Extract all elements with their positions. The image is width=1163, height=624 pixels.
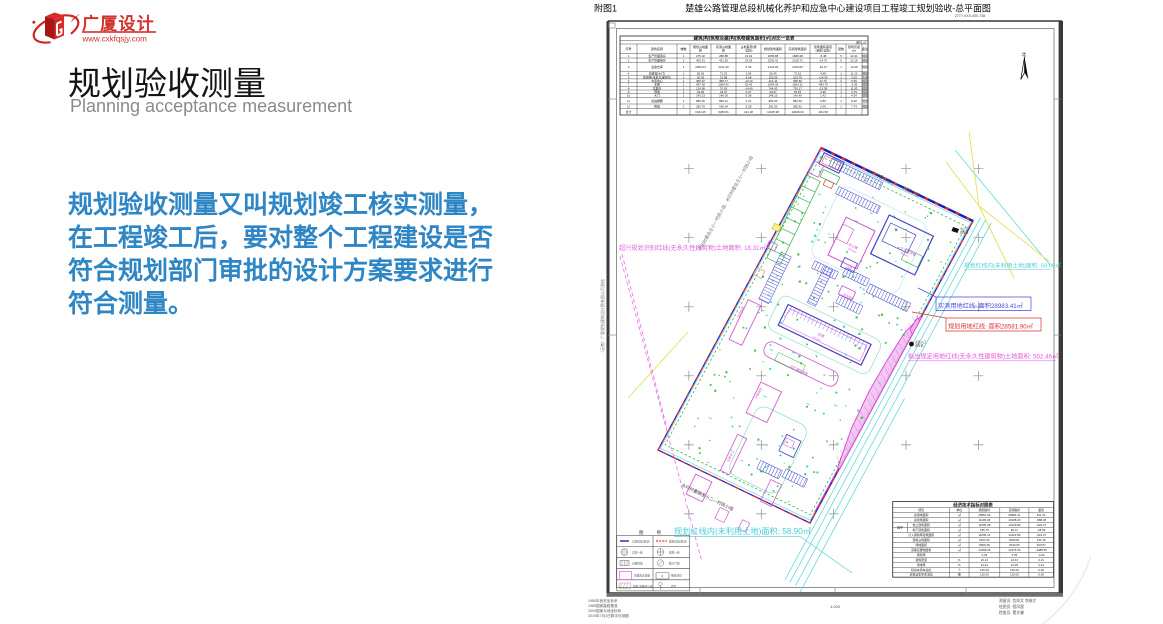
svg-text:1: 1	[628, 54, 630, 58]
svg-text:22.12: 22.12	[981, 558, 989, 562]
svg-text:数字门牌: 数字门牌	[669, 561, 680, 565]
svg-text:广厦设计: 广厦设计	[82, 14, 155, 34]
svg-text:大门: 大门	[654, 93, 660, 98]
svg-text:5: 5	[840, 59, 842, 63]
svg-text:实测用地红线: 面积28983.41㎡: 实测用地红线: 面积28983.41㎡	[938, 302, 1024, 310]
svg-text:差值: 差值	[1038, 507, 1044, 512]
svg-text:检查员: 窦文馨: 检查员: 窦文馨	[999, 610, 1024, 615]
svg-text:2777.XXX-000.738: 2777.XXX-000.738	[955, 14, 985, 18]
svg-text:401.41: 401.41	[1037, 513, 1046, 517]
svg-text:2134.93: 2134.93	[768, 65, 779, 69]
svg-text:分幢界线: 分幢界线	[632, 561, 643, 565]
svg-text:(规划-实际): (规划-实际)	[816, 48, 831, 53]
svg-text:-5.48: -5.48	[820, 54, 827, 58]
svg-text:882.00: 882.00	[696, 99, 705, 103]
svg-text:8966.28: 8966.28	[979, 543, 990, 547]
svg-text:道路及硬地面积: 道路及硬地面积	[911, 547, 931, 552]
svg-text:120.00: 120.00	[980, 573, 989, 577]
svg-text:2131.46: 2131.46	[718, 65, 729, 69]
svg-text:序号: 序号	[625, 46, 631, 51]
svg-text:10123.89: 10123.89	[1008, 533, 1020, 537]
svg-text:2093.03: 2093.03	[695, 65, 706, 69]
svg-text:11195.38: 11195.38	[767, 110, 779, 114]
svg-text:生产管理用房: 生产管理用房	[648, 53, 665, 58]
svg-text:㎡: ㎡	[958, 532, 961, 537]
svg-text:总建筑面积: 总建筑面积	[914, 517, 929, 522]
svg-text:拟出规定用地红线(无永久性建筑物)土地面积: 502.46㎡: 拟出规定用地红线(无永久性建筑物)土地面积: 502.46㎡	[908, 353, 1059, 361]
svg-text:规划红线内(未利用土地)面积: 59.09㎡: 规划红线内(未利用土地)面积: 59.09㎡	[964, 262, 1061, 270]
svg-text:实测建筑面积: 实测建筑面积	[788, 46, 806, 51]
svg-text:405.51: 405.51	[696, 59, 705, 63]
svg-text:㎡: ㎡	[958, 512, 961, 517]
svg-text:13.43: 13.43	[745, 54, 753, 58]
svg-text:双车道: 双车道	[960, 231, 969, 235]
svg-text:2000国家大地坐标系: 2000国家大地坐标系	[588, 608, 622, 613]
svg-text:规划红线内(未利用土地)面积: 58.90㎡: 规划红线内(未利用土地)面积: 58.90㎡	[674, 526, 811, 536]
svg-text:积: 积	[722, 48, 725, 53]
svg-text:加油棚棚: 加油棚棚	[651, 98, 663, 103]
svg-text:地下建筑面积: 地下建筑面积	[913, 527, 930, 532]
svg-text:规建: 规建	[862, 58, 868, 63]
svg-text:个: 个	[958, 568, 961, 572]
svg-text:非机动车停车泊位: 非机动车停车泊位	[910, 572, 933, 577]
svg-text:规建: 规建	[862, 93, 868, 98]
svg-text:超兴规划识别红线(无永久性建筑物)土地面积: 18.31㎡: 超兴规划识别红线(无永久性建筑物)土地面积: 18.31㎡	[619, 244, 767, 252]
svg-text:1: 1	[683, 59, 685, 63]
svg-text:水印村委会王小——村民小组: 水印村委会王小——村民小组	[866, 167, 921, 198]
svg-text:1: 1	[683, 94, 685, 98]
svg-text:10: 10	[627, 94, 631, 98]
svg-text:-28.59: -28.59	[1037, 528, 1046, 532]
svg-text:计入容积率建筑面积: 计入容积率建筑面积	[908, 532, 934, 537]
svg-text:2218.71: 2218.71	[792, 59, 803, 63]
svg-text:28581.90: 28581.90	[978, 513, 990, 517]
svg-text:6466.81: 6466.81	[1009, 538, 1020, 542]
svg-text:规划建筑面积: 规划建筑面积	[764, 46, 782, 51]
svg-text:4.21: 4.21	[746, 99, 752, 103]
svg-text:规划一栋: 规划一栋	[669, 550, 680, 554]
svg-text:实测红线(现状): 实测红线(现状)	[632, 539, 650, 543]
svg-text:11: 11	[627, 99, 630, 103]
svg-text:0.39: 0.39	[982, 553, 988, 557]
svg-text:7.74: 7.74	[851, 104, 857, 108]
svg-text:幢数: 幢数	[680, 46, 686, 51]
svg-text:9616.65: 9616.65	[1009, 543, 1020, 547]
svg-text:(m): (m)	[852, 49, 857, 53]
svg-text:8.46: 8.46	[746, 65, 752, 69]
svg-text:1: 1	[840, 104, 842, 108]
svg-text:1: 1	[683, 104, 685, 108]
svg-text:126.00: 126.00	[1010, 568, 1019, 572]
svg-text:-934.47: -934.47	[1036, 523, 1046, 527]
svg-text:机动车停车泊位: 机动车停车泊位	[911, 567, 931, 572]
svg-text:（云南）广厦规划建筑设计院有限公司测绘: （云南）广厦规划建筑设计院有限公司测绘	[599, 279, 605, 355]
svg-text:图 例: 图 例	[639, 529, 667, 536]
svg-text:单位: 单位	[956, 507, 962, 512]
svg-text:建筑(构)筑物及建(构)筑物建筑面积(㎡)对比一览表: 建筑(构)筑物及建(构)筑物建筑面积(㎡)对比一览表	[692, 35, 794, 42]
svg-text:0.31: 0.31	[1038, 558, 1044, 562]
svg-text:248.13: 248.13	[769, 94, 778, 98]
svg-text:-1088.96: -1088.96	[1035, 548, 1047, 552]
svg-text:4.34: 4.34	[851, 94, 857, 98]
svg-text:设备仓库: 设备仓库	[651, 64, 663, 69]
svg-text:5.08: 5.08	[746, 94, 752, 98]
svg-text:140.40: 140.40	[793, 94, 802, 98]
svg-text:辆: 辆	[958, 572, 961, 577]
svg-text:㎡: ㎡	[958, 537, 961, 542]
svg-text:12.08: 12.08	[850, 65, 858, 69]
svg-text:拆除部位: 拆除部位	[671, 573, 682, 577]
svg-text:规划红线(现状): 规划红线(现状)	[669, 539, 687, 543]
svg-text:绿地面积: 绿地面积	[915, 542, 927, 547]
svg-text:备注: 备注	[862, 46, 868, 51]
svg-text:建筑名称: 建筑名称	[651, 46, 663, 51]
svg-text:规划指标: 规划指标	[979, 507, 991, 512]
svg-text:-0.04: -0.04	[1038, 553, 1045, 557]
svg-text:141.28: 141.28	[744, 110, 753, 114]
svg-text:882.93: 882.93	[769, 99, 778, 103]
svg-text:31.44: 31.44	[981, 563, 989, 567]
svg-text:容积率: 容积率	[917, 552, 926, 557]
svg-text:2100.83: 2100.83	[792, 65, 803, 69]
svg-text:283.76: 283.76	[696, 104, 705, 108]
svg-text:2.00: 2.00	[820, 104, 826, 108]
svg-text:10208.00: 10208.00	[791, 110, 803, 114]
svg-text:层数: 层数	[838, 46, 844, 51]
svg-text:28983.41: 28983.41	[1008, 513, 1020, 517]
svg-text:产配电房: 产配电房	[753, 386, 763, 399]
svg-text:2.91: 2.91	[1038, 563, 1044, 567]
svg-text:13268.26: 13268.26	[978, 548, 990, 552]
svg-text:143.23: 143.23	[696, 94, 705, 98]
svg-text:22.41: 22.41	[850, 54, 858, 58]
svg-text:10208.00: 10208.00	[1008, 518, 1020, 522]
svg-text:X: X	[661, 575, 664, 579]
svg-text:0.80: 0.80	[820, 99, 826, 103]
svg-text:-实际): -实际)	[745, 48, 753, 53]
svg-text:1:200: 1:200	[830, 604, 841, 609]
svg-text:6486.81: 6486.81	[718, 110, 729, 114]
svg-text:10123.89: 10123.89	[1008, 523, 1020, 527]
svg-text:单位:㎡: 单位:㎡	[856, 40, 866, 45]
svg-text:总用地面积: 总用地面积	[914, 512, 929, 517]
svg-text:-14.75: -14.75	[819, 59, 828, 63]
svg-text:㎡: ㎡	[958, 547, 961, 552]
svg-text:暂缓拆迁建筑: 暂缓拆迁建筑	[634, 573, 650, 577]
svg-text:绘图员: 祖凤超: 绘图员: 祖凤超	[999, 604, 1024, 609]
svg-text:规建: 规建	[862, 64, 868, 69]
svg-text:0.00: 0.00	[1038, 573, 1044, 577]
svg-text:北: 北	[1022, 51, 1027, 58]
svg-text:-924.47: -924.47	[1036, 533, 1046, 537]
svg-text:水印村委会王小一村民小组、水印村委会王小一村民小组: 水印村委会王小一村民小组、水印村委会王小一村民小组	[697, 154, 756, 252]
svg-text:㎡: ㎡	[958, 517, 961, 522]
svg-text:8.40: 8.40	[851, 99, 857, 103]
svg-text:水印村委会王小二—村民小组: 水印村委会王小二—村民小组	[680, 481, 735, 512]
svg-text:12: 12	[627, 104, 631, 108]
svg-text:11055.38: 11055.38	[978, 523, 990, 527]
svg-text:1: 1	[840, 99, 842, 103]
svg-text:规建: 规建	[862, 53, 868, 58]
svg-text:11055.16: 11055.16	[978, 533, 990, 537]
svg-text:5: 5	[840, 54, 842, 58]
svg-text:34.35: 34.35	[1011, 563, 1019, 567]
svg-text:㎡: ㎡	[958, 542, 961, 547]
svg-text:5.28: 5.28	[746, 104, 752, 108]
svg-text:合计: 合计	[626, 109, 632, 114]
svg-text:2230.41: 2230.41	[768, 59, 779, 63]
svg-text:896.21: 896.21	[719, 99, 728, 103]
svg-text:196.04: 196.04	[719, 104, 728, 108]
svg-text:0.35: 0.35	[1012, 553, 1018, 557]
svg-text:1.42: 1.42	[820, 94, 826, 98]
svg-text:126.00: 126.00	[980, 568, 989, 572]
svg-text:141.35: 141.35	[1037, 538, 1046, 542]
svg-text:项目: 项目	[918, 508, 924, 512]
svg-text:1985国家高程基准: 1985国家高程基准	[588, 603, 618, 608]
svg-text:431.90: 431.90	[719, 59, 728, 63]
svg-text:275.32: 275.32	[696, 54, 705, 58]
svg-text:%: %	[958, 563, 961, 567]
svg-text:2019年7月1日数字化测图: 2019年7月1日数字化测图	[588, 613, 629, 618]
svg-text:23.93: 23.93	[745, 59, 753, 63]
svg-text:围墙: 围墙	[654, 103, 660, 108]
svg-text:6324.45: 6324.45	[695, 110, 706, 114]
svg-text:155.70: 155.70	[980, 528, 989, 532]
svg-text:%: %	[958, 558, 961, 562]
svg-text:乔木: 乔木	[671, 584, 677, 588]
svg-text:规划.道路中心线: 规划.道路中心线	[633, 584, 653, 588]
svg-text:280.81: 280.81	[793, 104, 802, 108]
svg-text:3: 3	[628, 65, 630, 69]
svg-text:-988.38: -988.38	[1036, 518, 1046, 522]
svg-text:1: 1	[683, 54, 685, 58]
svg-text:1689.38: 1689.38	[792, 54, 803, 58]
svg-text:楚雄公路管理总段机械化养护和应急中心建设项目工程竣工规划验收: 楚雄公路管理总段机械化养护和应急中心建设项目工程竣工规划验收-总平面图	[685, 3, 991, 14]
svg-text:www.cxkfqsjy.com: www.cxkfqsjy.com	[82, 35, 148, 44]
svg-text:建筑密度: 建筑密度	[915, 557, 927, 562]
svg-text:1: 1	[683, 65, 685, 69]
svg-text:1: 1	[840, 94, 842, 98]
svg-text:12179.30: 12179.30	[1008, 548, 1020, 552]
svg-text:84.11: 84.11	[1011, 528, 1018, 532]
svg-text:281.93: 281.93	[769, 104, 778, 108]
svg-text:11195.38: 11195.38	[979, 518, 991, 522]
svg-text:-64.27: -64.27	[819, 65, 828, 69]
svg-text:1: 1	[683, 99, 685, 103]
svg-text:-961.58: -961.58	[818, 110, 828, 114]
svg-text:22.43: 22.43	[1011, 558, 1019, 562]
svg-text:620.57: 620.57	[1037, 543, 1046, 547]
svg-text:双车道: 双车道	[915, 344, 924, 348]
svg-text:绿地率: 绿地率	[917, 562, 926, 567]
svg-text:实测指标: 实测指标	[1009, 507, 1021, 512]
svg-text:148.00: 148.00	[719, 94, 728, 98]
svg-text:6323.46: 6323.46	[979, 538, 990, 542]
svg-text:㎡: ㎡	[958, 522, 961, 527]
svg-text:㎡: ㎡	[958, 527, 961, 532]
svg-text:1: 1	[840, 65, 842, 69]
svg-text:其中: 其中	[897, 525, 903, 530]
svg-text:1655.88: 1655.88	[768, 54, 779, 58]
svg-text:规建: 规建	[862, 98, 868, 103]
svg-text:实测一栋: 实测一栋	[632, 550, 643, 554]
svg-text:规建: 规建	[862, 103, 868, 108]
svg-text:生产管理用房: 生产管理用房	[648, 58, 665, 63]
svg-text:1980年西安坐标系: 1980年西安坐标系	[588, 598, 618, 603]
svg-text:22.18: 22.18	[850, 59, 858, 63]
svg-text:882.60: 882.60	[793, 99, 802, 103]
svg-text:120.00: 120.00	[1010, 573, 1019, 577]
svg-text:附图1: 附图1	[594, 3, 617, 14]
svg-text:积: 积	[699, 48, 702, 53]
svg-text:测量员: 包如文 李继才: 测量员: 包如文 李继才	[999, 598, 1037, 603]
svg-text:地上建筑面积: 地上建筑面积	[913, 522, 930, 527]
svg-text:0.00: 0.00	[1038, 568, 1044, 572]
svg-text:2: 2	[628, 59, 630, 63]
svg-text:生产辅助用房: 生产辅助用房	[790, 363, 809, 376]
svg-text:规划用地红线: 面积28581.90㎡: 规划用地红线: 面积28581.90㎡	[948, 323, 1034, 331]
svg-text:288.88: 288.88	[719, 54, 728, 58]
svg-text:建筑占地面积: 建筑占地面积	[913, 537, 930, 542]
